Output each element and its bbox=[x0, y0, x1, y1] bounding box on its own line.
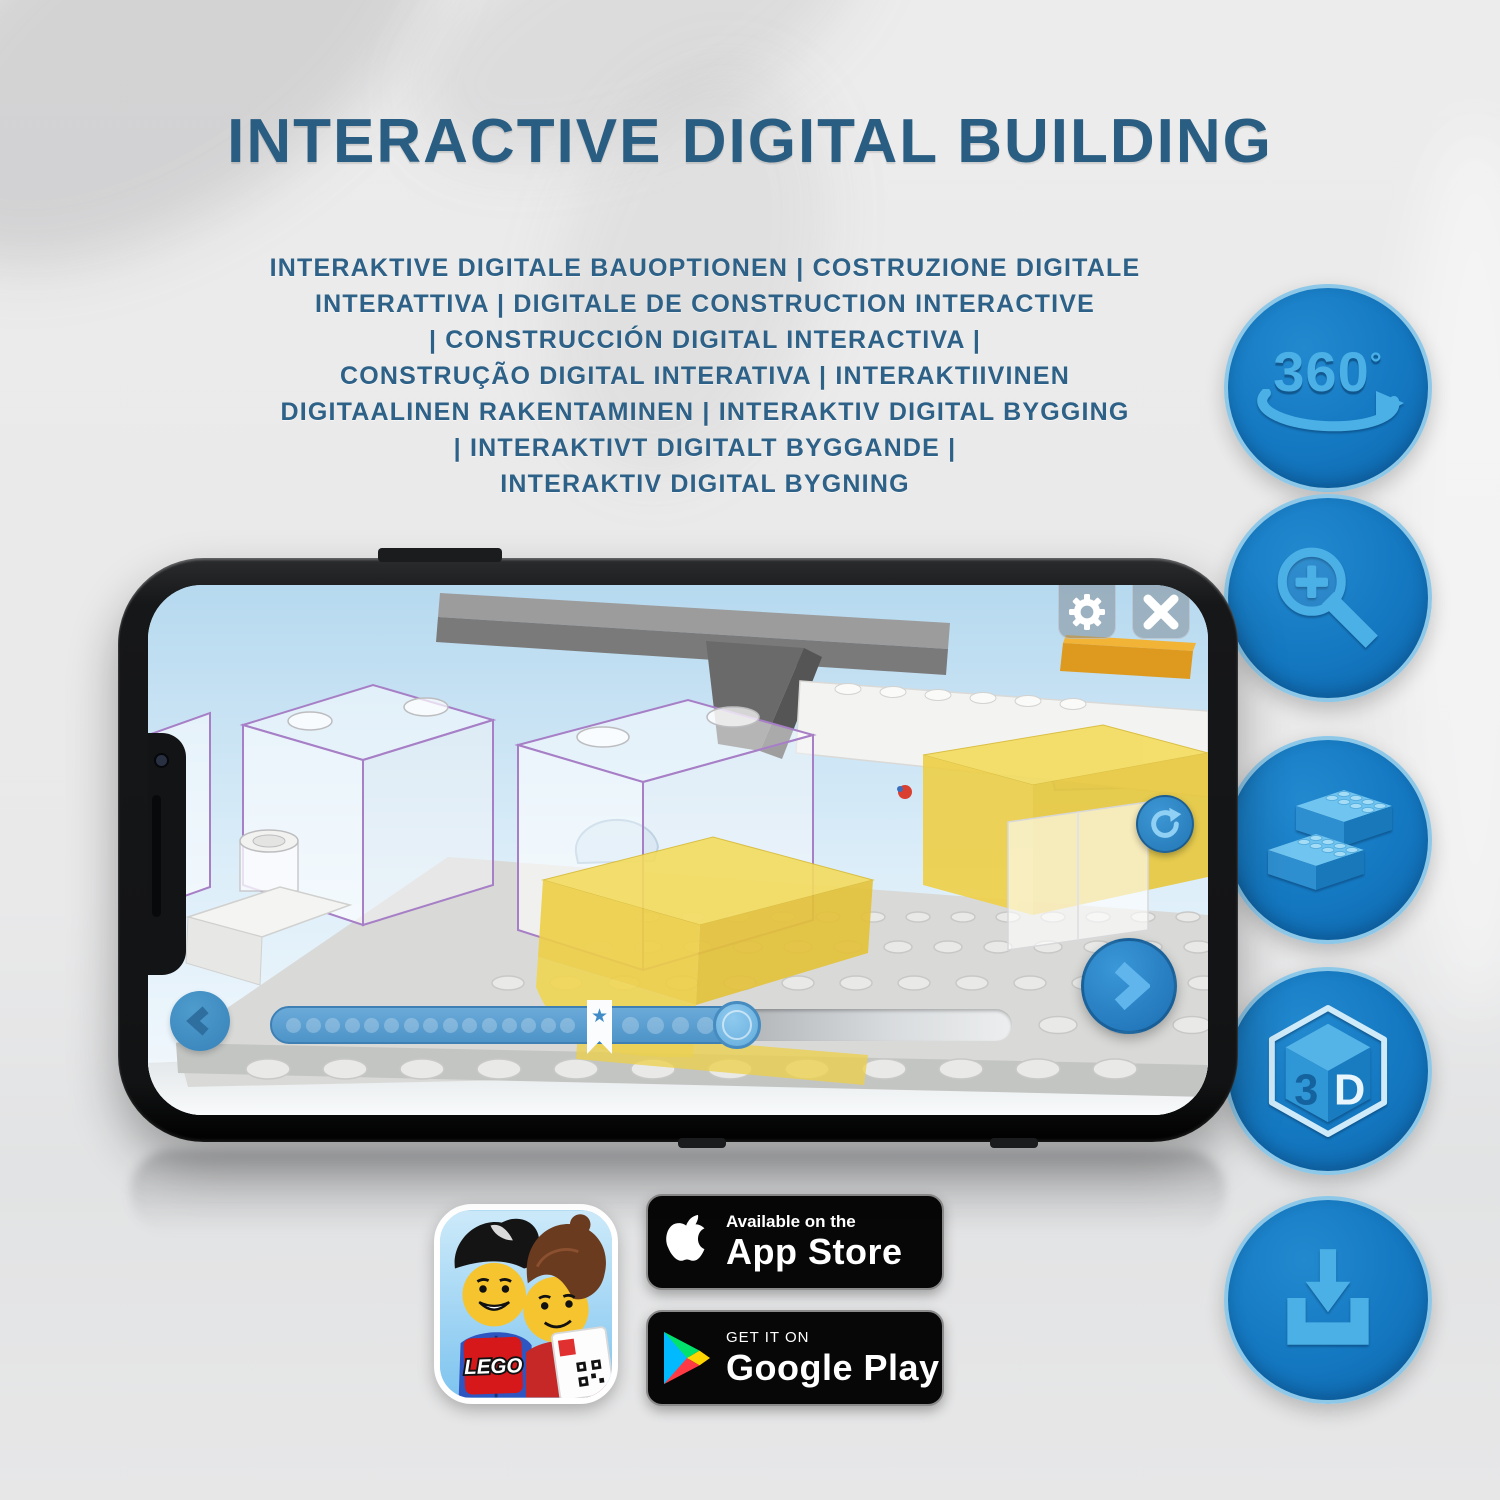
chevron-left-icon bbox=[186, 1004, 214, 1038]
lego-bricks-icon bbox=[1258, 779, 1398, 901]
marketing-page: INTERACTIVE DIGITAL BUILDING INTERAKTIVE… bbox=[0, 0, 1500, 1500]
rotate-arrow-icon bbox=[1248, 389, 1408, 437]
progress-dot bbox=[443, 1018, 458, 1033]
progress-dot bbox=[672, 1017, 689, 1034]
subtitle-line: INTERATTIVA | DIGITALE DE CONSTRUCTION I… bbox=[0, 286, 1455, 322]
chevron-right-icon bbox=[1108, 961, 1150, 1011]
progress-dot bbox=[541, 1018, 556, 1033]
qr-card bbox=[551, 1327, 612, 1398]
page-title: INTERACTIVE DIGITAL BUILDING bbox=[0, 106, 1500, 177]
lego-app-artwork: LEGO bbox=[440, 1210, 612, 1398]
progress-dot bbox=[306, 1018, 321, 1033]
app-store-line2: App Store bbox=[726, 1232, 903, 1272]
progress-dot bbox=[404, 1018, 419, 1033]
google-play-icon bbox=[648, 1331, 726, 1385]
lego-logo-text: LEGO bbox=[464, 1354, 523, 1379]
lego-logo: LEGO bbox=[463, 1337, 523, 1395]
progress-dot bbox=[622, 1017, 639, 1034]
progress-dot bbox=[462, 1018, 477, 1033]
feature-zoom bbox=[1224, 494, 1432, 702]
google-play-badge[interactable]: GET IT ON Google Play bbox=[646, 1310, 944, 1406]
refresh-icon bbox=[1148, 807, 1182, 841]
volume-button bbox=[678, 1138, 726, 1148]
close-button[interactable] bbox=[1132, 585, 1190, 639]
google-play-line1: GET IT ON bbox=[726, 1328, 940, 1348]
step-progress-fill[interactable]: ★ bbox=[270, 1006, 746, 1044]
subtitle-line: INTERAKTIVE DIGITALE BAUOPTIONEN | COSTR… bbox=[0, 250, 1455, 286]
3d-cube-icon: 3 D bbox=[1264, 1002, 1392, 1140]
feature-360-rotation: 360° bbox=[1224, 284, 1432, 492]
subtitle-line: INTERAKTIV DIGITAL BYGNING bbox=[0, 466, 1455, 502]
progress-dot bbox=[364, 1018, 379, 1033]
phone-screen: ★ bbox=[148, 585, 1208, 1115]
volume-button bbox=[990, 1138, 1038, 1148]
progress-dot bbox=[384, 1018, 399, 1033]
power-button bbox=[378, 548, 502, 562]
settings-button[interactable] bbox=[1058, 585, 1116, 639]
previous-step-button[interactable] bbox=[170, 991, 230, 1051]
reset-rotation-button[interactable] bbox=[1136, 795, 1194, 853]
download-icon bbox=[1267, 1239, 1389, 1361]
app-store-badge[interactable]: Available on the App Store bbox=[646, 1194, 944, 1290]
progress-dot bbox=[560, 1018, 575, 1033]
step-progress-remaining[interactable] bbox=[746, 1009, 1012, 1041]
progress-dot bbox=[286, 1018, 301, 1033]
progress-dot bbox=[423, 1018, 438, 1033]
ghost-cylinder-brick bbox=[240, 830, 298, 891]
earpiece-speaker bbox=[152, 795, 161, 917]
feature-download bbox=[1224, 1196, 1432, 1404]
smartphone: ★ bbox=[118, 558, 1238, 1142]
feature-bricks bbox=[1224, 736, 1432, 944]
progress-dot bbox=[697, 1017, 714, 1034]
progress-dot bbox=[345, 1018, 360, 1033]
progress-dot bbox=[521, 1018, 536, 1033]
feature-3d-view: 3 D bbox=[1224, 967, 1432, 1175]
ghost-brick-front-right bbox=[1008, 802, 1148, 950]
google-play-line2: Google Play bbox=[726, 1348, 940, 1388]
app-store-line1: Available on the bbox=[726, 1212, 903, 1232]
progress-dot bbox=[482, 1018, 497, 1033]
phone-notch bbox=[148, 733, 186, 975]
cube-face-d: D bbox=[1334, 1066, 1365, 1114]
apple-icon bbox=[648, 1211, 726, 1273]
progress-thumb[interactable] bbox=[713, 1001, 761, 1049]
next-step-button[interactable] bbox=[1081, 938, 1177, 1034]
progress-dot bbox=[647, 1017, 664, 1034]
gear-icon bbox=[1069, 594, 1105, 630]
boy-face bbox=[462, 1263, 526, 1327]
progress-dot bbox=[325, 1018, 340, 1033]
front-camera bbox=[154, 753, 169, 768]
progress-dot bbox=[502, 1018, 517, 1033]
cube-face-3: 3 bbox=[1294, 1066, 1318, 1114]
close-icon bbox=[1143, 594, 1179, 630]
lego-app-icon: LEGO bbox=[434, 1204, 618, 1404]
magnifier-plus-icon bbox=[1267, 537, 1389, 659]
